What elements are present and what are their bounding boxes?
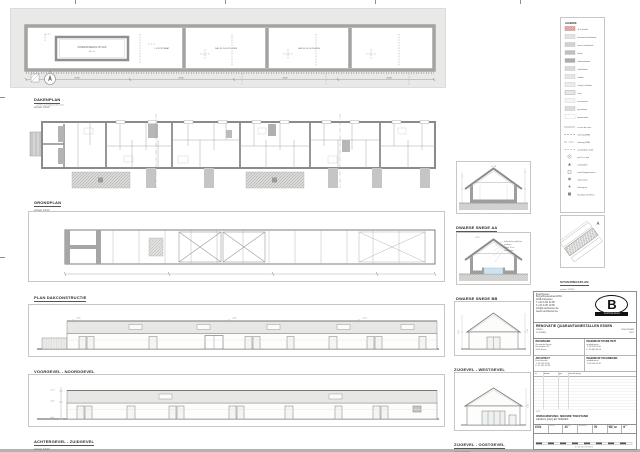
rear-elevation-drawing: +7.10 +4.95 ±0.00 — [28, 374, 445, 427]
ruler-numbers: 0 1 2 3 4 5 6 7 8 9 10 m — [575, 446, 593, 448]
fold-mark — [375, 0, 376, 4]
svg-text:af te breken: af te breken — [578, 28, 589, 31]
revision-table: nr. datum get. omschrijving — [534, 372, 636, 410]
project-title-band: RENOVATIE QUARANTAINESTALLEN ESSEN WERF:… — [534, 322, 636, 339]
ground-plan-label: GRONDPLAN schaal: 1/100 — [34, 191, 61, 213]
note: waterbekken — [504, 249, 514, 252]
svg-text:riolering DWA: riolering DWA — [578, 141, 591, 144]
legend-swatch — [565, 27, 575, 31]
legend-symbol — [568, 193, 571, 196]
core — [148, 124, 158, 138]
site-symbol — [31, 74, 39, 82]
level-text: +4.95 — [50, 401, 54, 403]
site-buildings — [561, 221, 603, 262]
info-plannr: plan nr. WE_02 — [608, 425, 623, 433]
b-architecten-logo: B architecten — [590, 294, 634, 323]
svg-text:brandwerend Rf 1h: brandwerend Rf 1h — [578, 195, 595, 197]
svg-text:beton: beton — [578, 52, 583, 55]
svg-text:cellenbeton: cellenbeton — [578, 68, 588, 71]
legend-swatch — [565, 107, 575, 111]
parties-grid: BOUWHEER Gemeente Essen Heuvelplein 23 2… — [534, 339, 636, 372]
ridge-level: +7.10 — [491, 166, 497, 168]
floor-slab — [505, 271, 517, 275]
legend-swatch — [565, 99, 575, 103]
roof-label-2: DAK IN GOLFPLATEN — [215, 47, 238, 50]
side-door — [509, 415, 516, 425]
lot-content: GEVELS (plan) EN SNEDES — [536, 418, 634, 421]
situation-plan-drawing — [560, 215, 605, 268]
svg-text:bestaand metselwerk: bestaand metselwerk — [578, 36, 597, 39]
svg-text:verlichtingsarmatuur: verlichtingsarmatuur — [578, 171, 596, 174]
legend-swatch — [565, 115, 575, 119]
fold-mark — [0, 97, 5, 98]
svg-text:natuursteen: natuursteen — [578, 100, 589, 103]
logo-ellipse: B — [595, 295, 628, 314]
fold-mark — [520, 0, 521, 4]
level-text: +7.10 — [362, 318, 367, 320]
info-fase: fase UV — [593, 425, 608, 433]
dim-text: 20.80 — [386, 77, 392, 79]
svg-text:riolering RWA: riolering RWA — [578, 134, 591, 137]
skylight-sub: (60 st.) — [89, 50, 96, 53]
titleblock-header: B architecten Borgerhoutsestraat 22/01 2… — [534, 292, 636, 322]
section-b-drawing: dakbedekking golfplaten gordingen isolat… — [456, 232, 531, 285]
lot-block: LOT OMSCHRIJVING: NIEUWE TOESTAND GEVELS… — [534, 410, 636, 425]
dossier-value: 1627 — [629, 332, 634, 334]
legend-title: LEGENDE — [565, 22, 577, 25]
revision-rows — [534, 377, 636, 410]
roof-band — [67, 391, 437, 404]
gable-east-drawing: 7.10 — [454, 372, 531, 431]
floor-slab — [470, 271, 482, 275]
core — [342, 140, 350, 152]
note: dakbedekking golfplaten — [504, 240, 522, 243]
entrance-steps — [30, 132, 42, 156]
annex — [42, 338, 67, 349]
legend-symbol — [568, 178, 571, 181]
situation-plan-label: SITUERINGSPLAN schaal: 1/2500 — [560, 270, 589, 291]
firm-address: B architecten Borgerhoutsestraat 22/01 2… — [536, 294, 590, 323]
roof-label-3: DAK IN GOLFPLATEN — [298, 47, 321, 50]
level-text: ±0.00 — [50, 417, 54, 419]
svg-text:rookmelder: rookmelder — [578, 165, 588, 167]
building-outline — [42, 122, 435, 168]
party-ingenieur-stabiliteit: INGENIEUR STABILITEIT studiebureau T: 03… — [585, 339, 636, 356]
ground-hatch — [459, 274, 528, 281]
party-architect: ARCHITECT B architecten T: 03 231 02 85 … — [534, 356, 585, 373]
dim-text: 4.95 — [458, 330, 460, 334]
fold-mark — [75, 0, 76, 4]
ridge-level: +7.10 — [474, 237, 480, 239]
level-text: +4.95 — [76, 318, 81, 320]
info-schaal: schaal 1/100 — [534, 425, 549, 433]
screenshot-stage: ZONNEPANELEN OP DAK (60 st.) LICHTSTRAAT… — [0, 0, 640, 452]
front-elevation-drawing: +4.95 +7.10 +4.95 — [28, 304, 445, 357]
note: isolatie 18 cm — [504, 246, 515, 249]
drawing-sheet: ZONNEPANELEN OP DAK (60 st.) LICHTSTRAAT… — [0, 0, 640, 449]
dimension-stack — [59, 387, 63, 419]
legend-symbol — [568, 185, 571, 188]
gable-roof — [465, 388, 522, 406]
svg-text:hout: hout — [578, 92, 582, 95]
info-index: index B — [622, 425, 636, 433]
legend-symbol — [568, 171, 571, 174]
roof-band — [67, 321, 437, 334]
svg-text:nieuw metselwerk: nieuw metselwerk — [578, 44, 594, 47]
svg-text:pleisterwerk: pleisterwerk — [578, 116, 589, 119]
dim-text: 7.10 — [527, 329, 529, 333]
skylight-label: ZONNEPANELEN OP DAK — [77, 46, 106, 49]
dim-text: 7.10 — [528, 404, 530, 408]
roof-slope — [465, 169, 522, 190]
north-arrow-icon — [597, 221, 600, 225]
svg-text:gevelsteen: gevelsteen — [578, 108, 588, 111]
party-bouwheer: BOUWHEER Gemeente Essen Heuvelplein 23 2… — [534, 339, 585, 356]
note: gordingen — [504, 243, 512, 246]
legend-symbol — [568, 163, 571, 166]
info-strip: schaal 1/100 datum formaat A0 getekend f… — [534, 425, 636, 434]
legend-swatch — [565, 83, 575, 87]
legend-swatch — [565, 91, 575, 95]
core — [268, 124, 276, 136]
legend-swatch — [565, 59, 575, 63]
dim-text: 20.80 — [74, 77, 80, 79]
plan-note: +0.00 = peil afgewerkte vloer — [36, 104, 64, 107]
roof-plan-drawing: ZONNEPANELEN OP DAK (60 st.) LICHTSTRAAT… — [10, 8, 446, 88]
titleblock: B architecten Borgerhoutsestraat 22/01 2… — [533, 291, 637, 450]
legend: LEGENDE af te breken bestaand metselwerk… — [560, 17, 605, 213]
water-basin — [484, 268, 503, 274]
svg-text:kalkzandsteen: kalkzandsteen — [578, 60, 591, 63]
legend-swatch — [565, 35, 575, 39]
fold-mark — [0, 257, 5, 258]
gable-east-label: ZIJGEVEL - OOSTGEVEL schaal: 1/100 — [454, 433, 505, 452]
svg-text:as van de muur: as van de muur — [578, 127, 592, 129]
core — [226, 130, 232, 138]
info-datum: datum — [549, 425, 564, 433]
werf-value: 2910 ESSEN — [621, 329, 634, 331]
party-ingenieur-technieken: INGENIEUR TECHNIEKEN studiebureau T: 03 … — [585, 356, 636, 373]
glazed-door — [482, 411, 505, 425]
section-a-drawing: +7.10 — [456, 161, 531, 214]
roof-label-1: LICHTSTRAAT — [155, 47, 170, 50]
floor-slab — [470, 200, 517, 204]
legend-swatch — [565, 51, 575, 55]
info-formaat: formaat A0 — [563, 425, 578, 433]
dim-text: 20.80 — [178, 77, 184, 79]
dim-text: 20.80 — [282, 77, 288, 79]
werf-label: WERF: — [536, 329, 543, 331]
building-outline — [65, 230, 435, 264]
project-title: RENOVATIE QUARANTAINESTALLEN ESSEN — [536, 324, 634, 328]
gable-roof — [467, 313, 520, 332]
dossier-label: DOSSIER: — [536, 332, 546, 334]
svg-text:stopcontact: stopcontact — [578, 179, 589, 182]
structure-plan-drawing — [28, 211, 445, 282]
legend-swatch — [565, 43, 575, 47]
svg-text:isolatie: isolatie — [578, 76, 585, 79]
ground-plan-drawing: +0.00 = peil afgewerkte vloer — [28, 100, 446, 190]
logo-name: architecten — [595, 312, 628, 316]
svg-text:chape / dekvloer: chape / dekvloer — [578, 85, 593, 87]
legend-swatch — [565, 75, 575, 79]
rear-elevation-label: ACHTERGEVEL - ZUIDGEVEL schaal: 1/100 — [34, 430, 94, 452]
svg-text:peil t.o.v. pas: peil t.o.v. pas — [578, 156, 590, 159]
level-text: +4.95 — [232, 318, 237, 320]
gable-west-drawing: 4.95 7.10 — [454, 301, 531, 356]
ground-hatch — [459, 203, 528, 210]
legend-swatch — [565, 67, 575, 71]
svg-text:afvoerpunt: afvoerpunt — [578, 186, 588, 189]
fold-mark — [225, 0, 226, 4]
level-text: +7.10 — [50, 390, 54, 392]
scale-ruler: 0 1 2 3 4 5 6 7 8 9 10 m — [534, 434, 636, 441]
info-getekend: getekend — [578, 425, 593, 433]
lot-description: OMSCHRIJVING: NIEUWE TOESTAND — [536, 414, 634, 418]
svg-text:aanduiding snede: aanduiding snede — [578, 150, 595, 152]
